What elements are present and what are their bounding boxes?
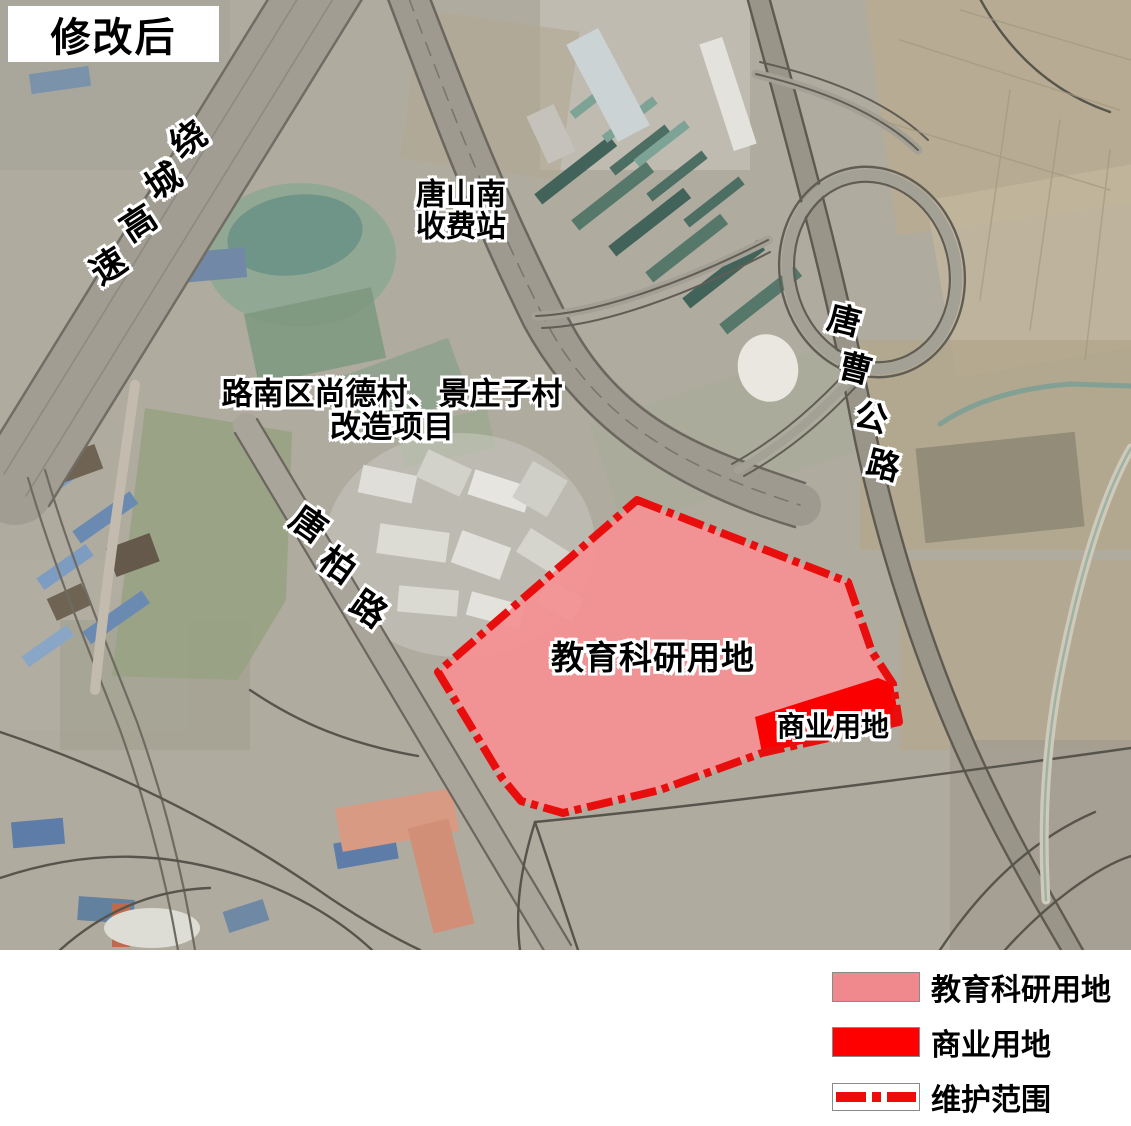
satellite-map: 唐山南 收费站 路南区尚德村、景庄子村 改造项目 教育科研用地 商业用地 绕城高… xyxy=(0,0,1131,950)
legend-label-education: 教育科研用地 xyxy=(931,965,1111,1009)
legend-item-boundary: 维护范围 xyxy=(832,1081,1111,1113)
toll-station-label-line2: 收费站 xyxy=(416,212,506,244)
legend-label-commercial: 商业用地 xyxy=(931,1020,1051,1064)
revision-badge: 修改后 xyxy=(8,6,219,62)
planning-map-figure: 唐山南 收费站 路南区尚德村、景庄子村 改造项目 教育科研用地 商业用地 绕城高… xyxy=(0,0,1131,1126)
renovation-project-label: 路南区尚德村、景庄子村 改造项目 xyxy=(222,378,563,445)
education-zone-label: 教育科研用地 xyxy=(551,640,755,676)
renovation-project-label-line1: 路南区尚德村、景庄子村 xyxy=(222,378,563,411)
renovation-project-label-line2: 改造项目 xyxy=(222,411,563,444)
toll-station-label-line1: 唐山南 xyxy=(416,180,506,212)
legend-swatch-boundary xyxy=(832,1083,920,1111)
legend-swatch-commercial xyxy=(832,1027,920,1057)
legend-swatch-education xyxy=(832,972,920,1002)
legend: 教育科研用地 商业用地 维护范围 xyxy=(832,971,1111,1113)
dash-dot-line-sample xyxy=(833,1084,919,1110)
toll-station-label: 唐山南 收费站 xyxy=(416,180,506,245)
legend-label-boundary: 维护范围 xyxy=(931,1075,1051,1119)
commercial-zone-label: 商业用地 xyxy=(777,712,889,742)
legend-item-commercial: 商业用地 xyxy=(832,1026,1111,1058)
legend-item-education: 教育科研用地 xyxy=(832,971,1111,1003)
